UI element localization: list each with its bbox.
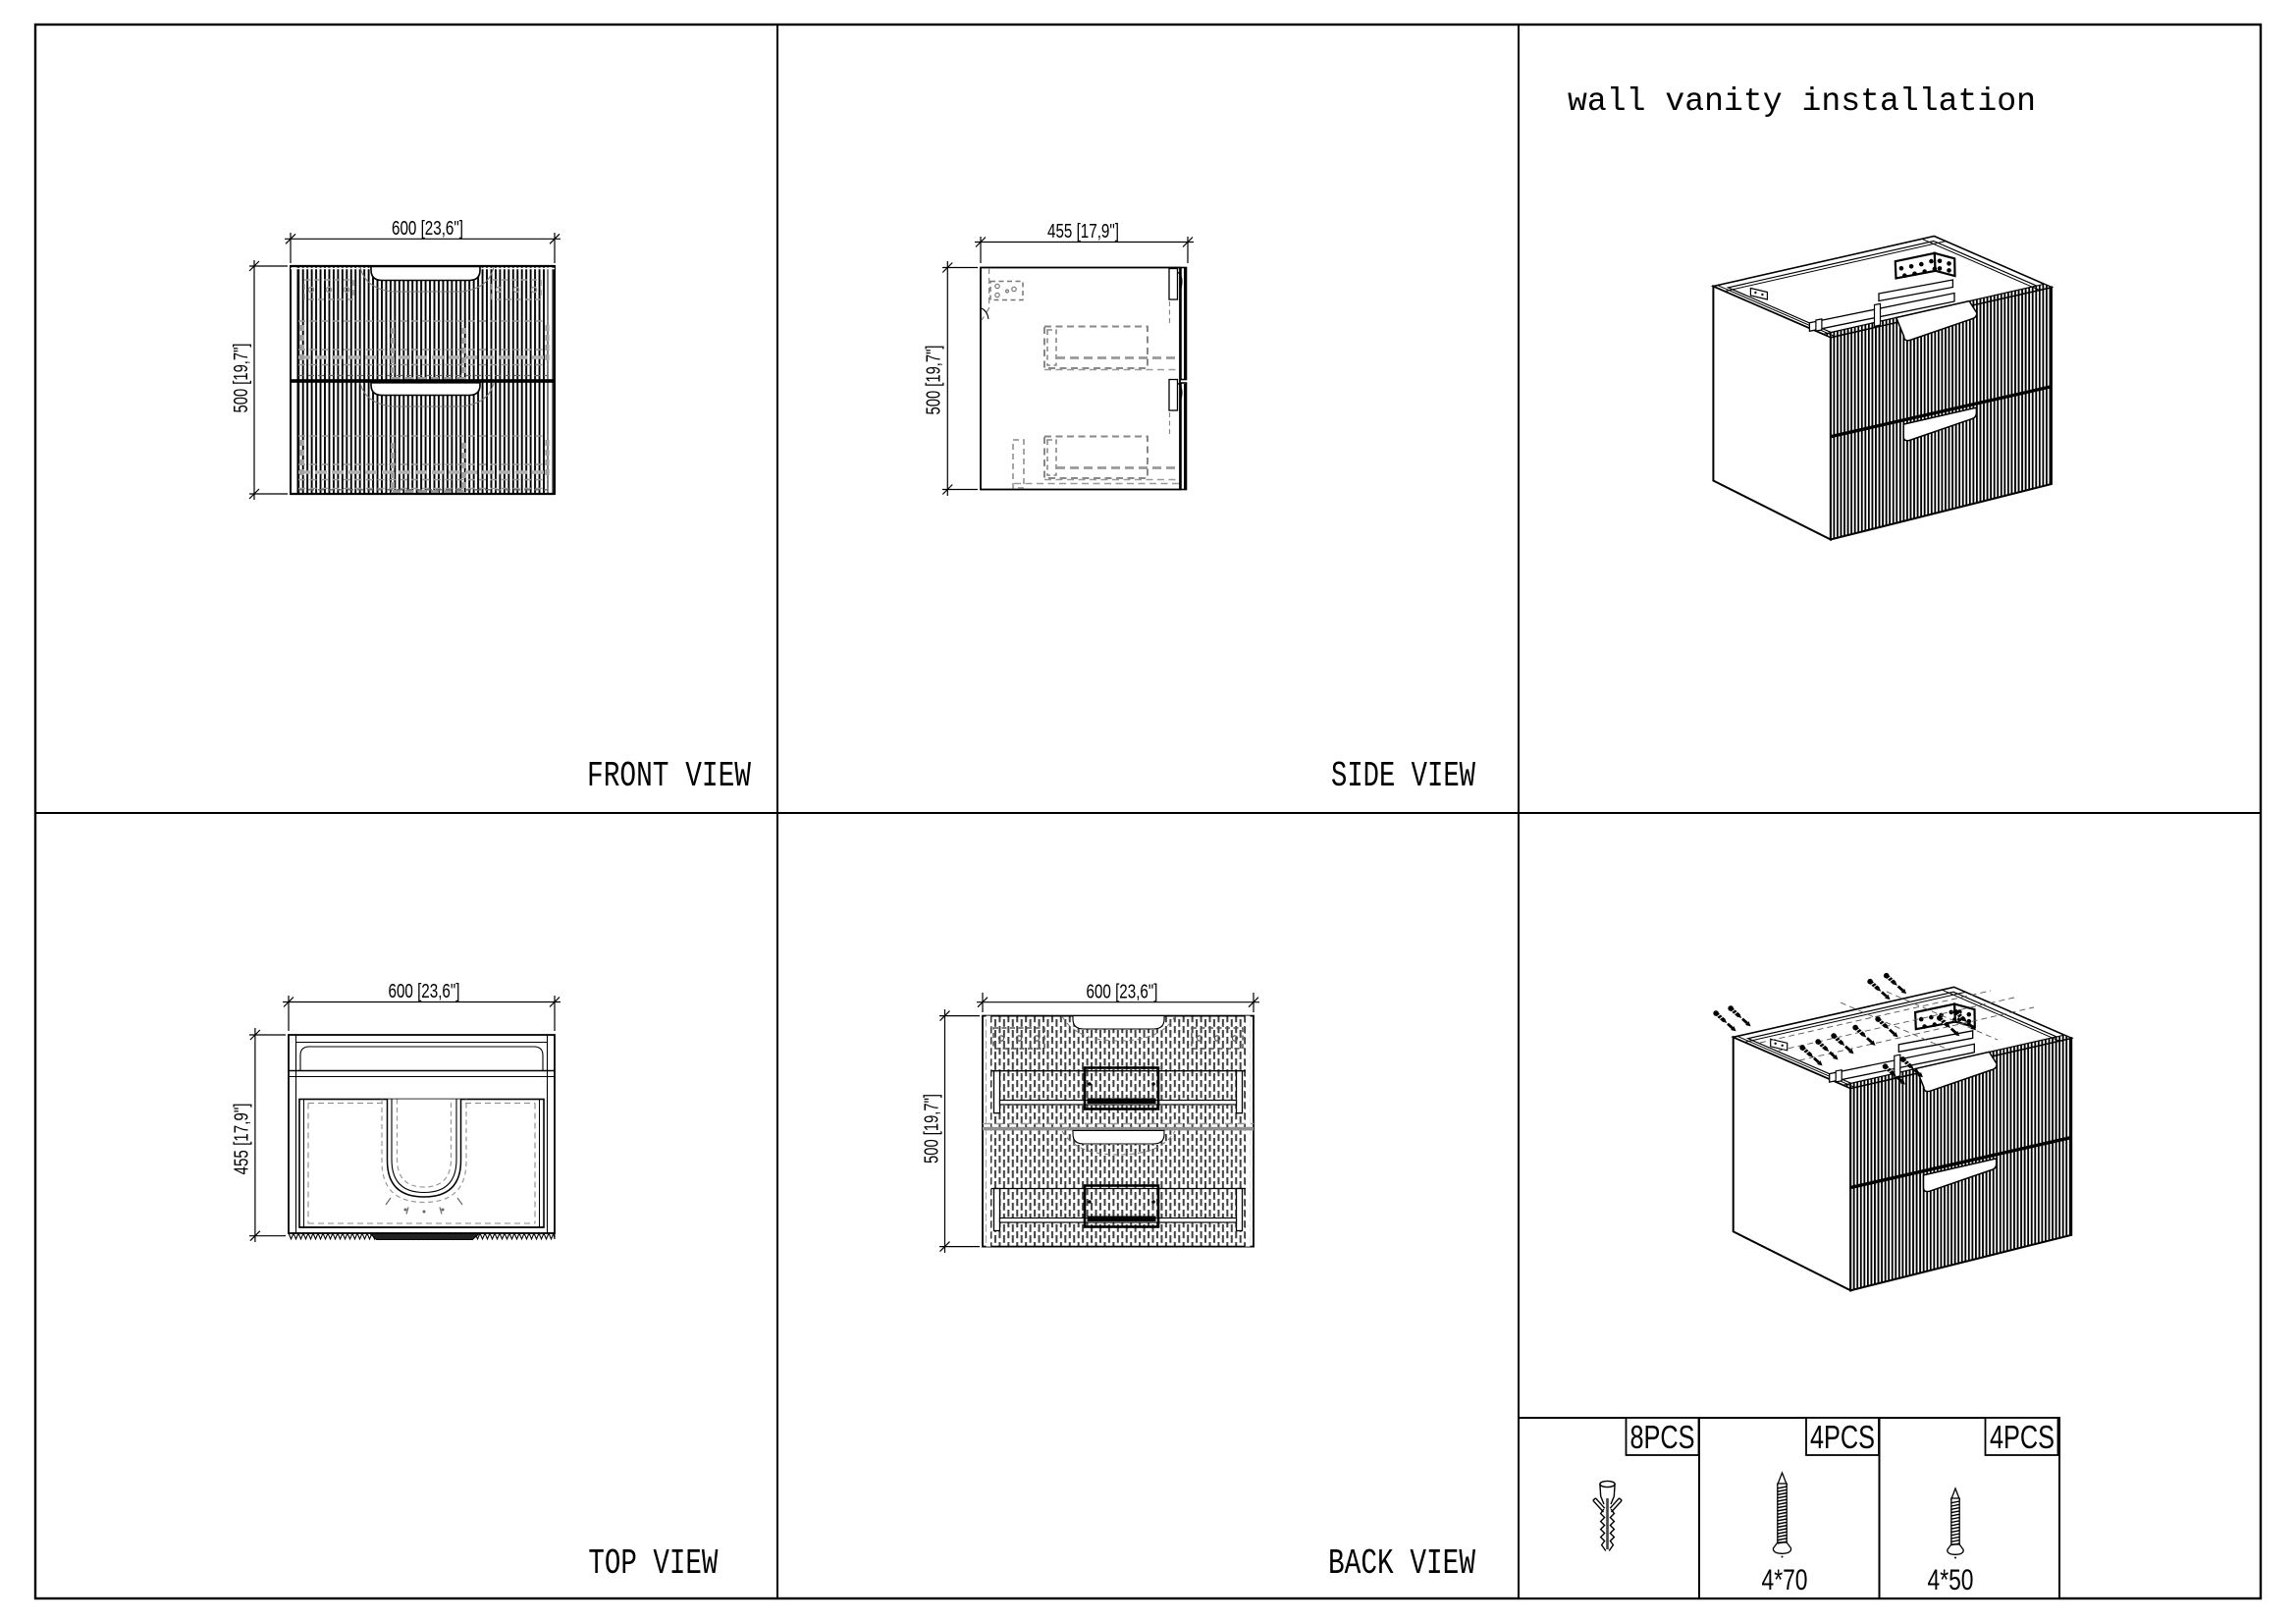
svg-text:500 [19,7"]: 500 [19,7"] xyxy=(922,1094,943,1163)
svg-text:FRONT VIEW: FRONT VIEW xyxy=(587,756,751,796)
svg-text:500 [19,7"]: 500 [19,7"] xyxy=(231,344,252,413)
svg-text:8PCS: 8PCS xyxy=(1630,1419,1695,1455)
svg-text:4*70: 4*70 xyxy=(1762,1564,1808,1596)
svg-text:BACK VIEW: BACK VIEW xyxy=(1328,1543,1475,1584)
svg-text:455 [17,9"]: 455 [17,9"] xyxy=(1047,221,1119,243)
svg-text:500 [19,7"]: 500 [19,7"] xyxy=(924,346,945,415)
svg-text:600 [23,6"]: 600 [23,6"] xyxy=(1087,982,1158,1003)
svg-text:600 [23,6"]: 600 [23,6"] xyxy=(389,981,460,1002)
svg-text:SIDE VIEW: SIDE VIEW xyxy=(1331,756,1475,796)
svg-text:455 [17,9"]: 455 [17,9"] xyxy=(232,1104,253,1175)
svg-text:wall vanity installation: wall vanity installation xyxy=(1568,83,2036,120)
svg-text:TOP VIEW: TOP VIEW xyxy=(588,1543,718,1584)
svg-text:4PCS: 4PCS xyxy=(1990,1419,2055,1455)
svg-text:4*50: 4*50 xyxy=(1928,1564,1974,1596)
svg-text:4PCS: 4PCS xyxy=(1810,1419,1875,1455)
svg-text:600 [23,6"]: 600 [23,6"] xyxy=(392,218,463,240)
